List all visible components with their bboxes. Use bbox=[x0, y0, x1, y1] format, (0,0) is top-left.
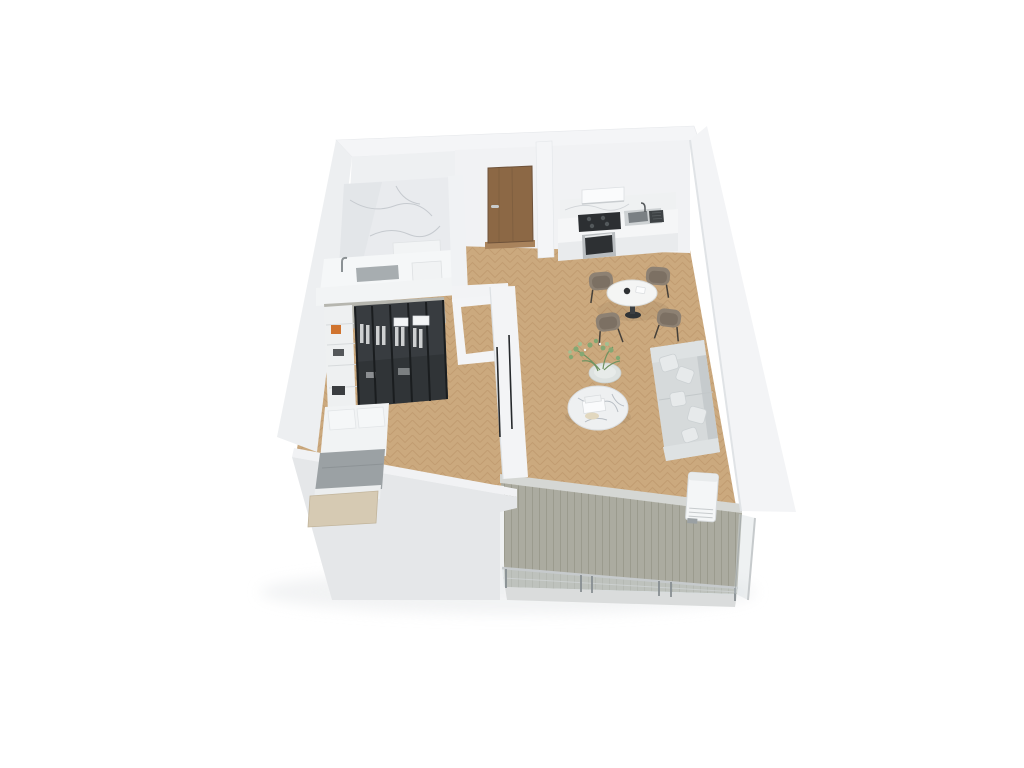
front-door bbox=[485, 166, 535, 249]
bathtub-basin bbox=[356, 265, 399, 282]
plant-flower bbox=[599, 343, 601, 345]
wardrobe-shelf-column bbox=[324, 305, 356, 413]
cup bbox=[636, 286, 646, 293]
shelf-box-dark bbox=[332, 386, 345, 395]
storage-item bbox=[398, 368, 410, 375]
linen-stack bbox=[413, 316, 429, 325]
ac-foot bbox=[687, 518, 697, 524]
shelf-box-dark bbox=[333, 349, 344, 356]
floor-plan-render bbox=[0, 0, 1024, 768]
plant-flower bbox=[584, 349, 586, 351]
door-handle-icon bbox=[491, 205, 499, 208]
bed-headboard bbox=[308, 491, 378, 527]
orange-storage-box bbox=[331, 325, 341, 334]
teapot bbox=[624, 288, 630, 294]
cooktop bbox=[578, 212, 621, 232]
wardrobe-lower-storage bbox=[356, 354, 448, 407]
beige-tray bbox=[585, 413, 599, 420]
oven bbox=[582, 232, 616, 259]
linen-stack bbox=[394, 318, 408, 326]
drying-rack bbox=[649, 210, 664, 223]
door-leaf bbox=[488, 166, 533, 243]
bed-pillow bbox=[357, 407, 385, 428]
floor-plan-canvas bbox=[0, 0, 1024, 768]
bed-pillow bbox=[328, 409, 356, 430]
wardrobe bbox=[324, 297, 448, 413]
kitchen-divider-wall bbox=[536, 141, 554, 258]
washbasin bbox=[412, 261, 442, 281]
side-table bbox=[589, 363, 621, 383]
ac-unit bbox=[685, 472, 718, 525]
